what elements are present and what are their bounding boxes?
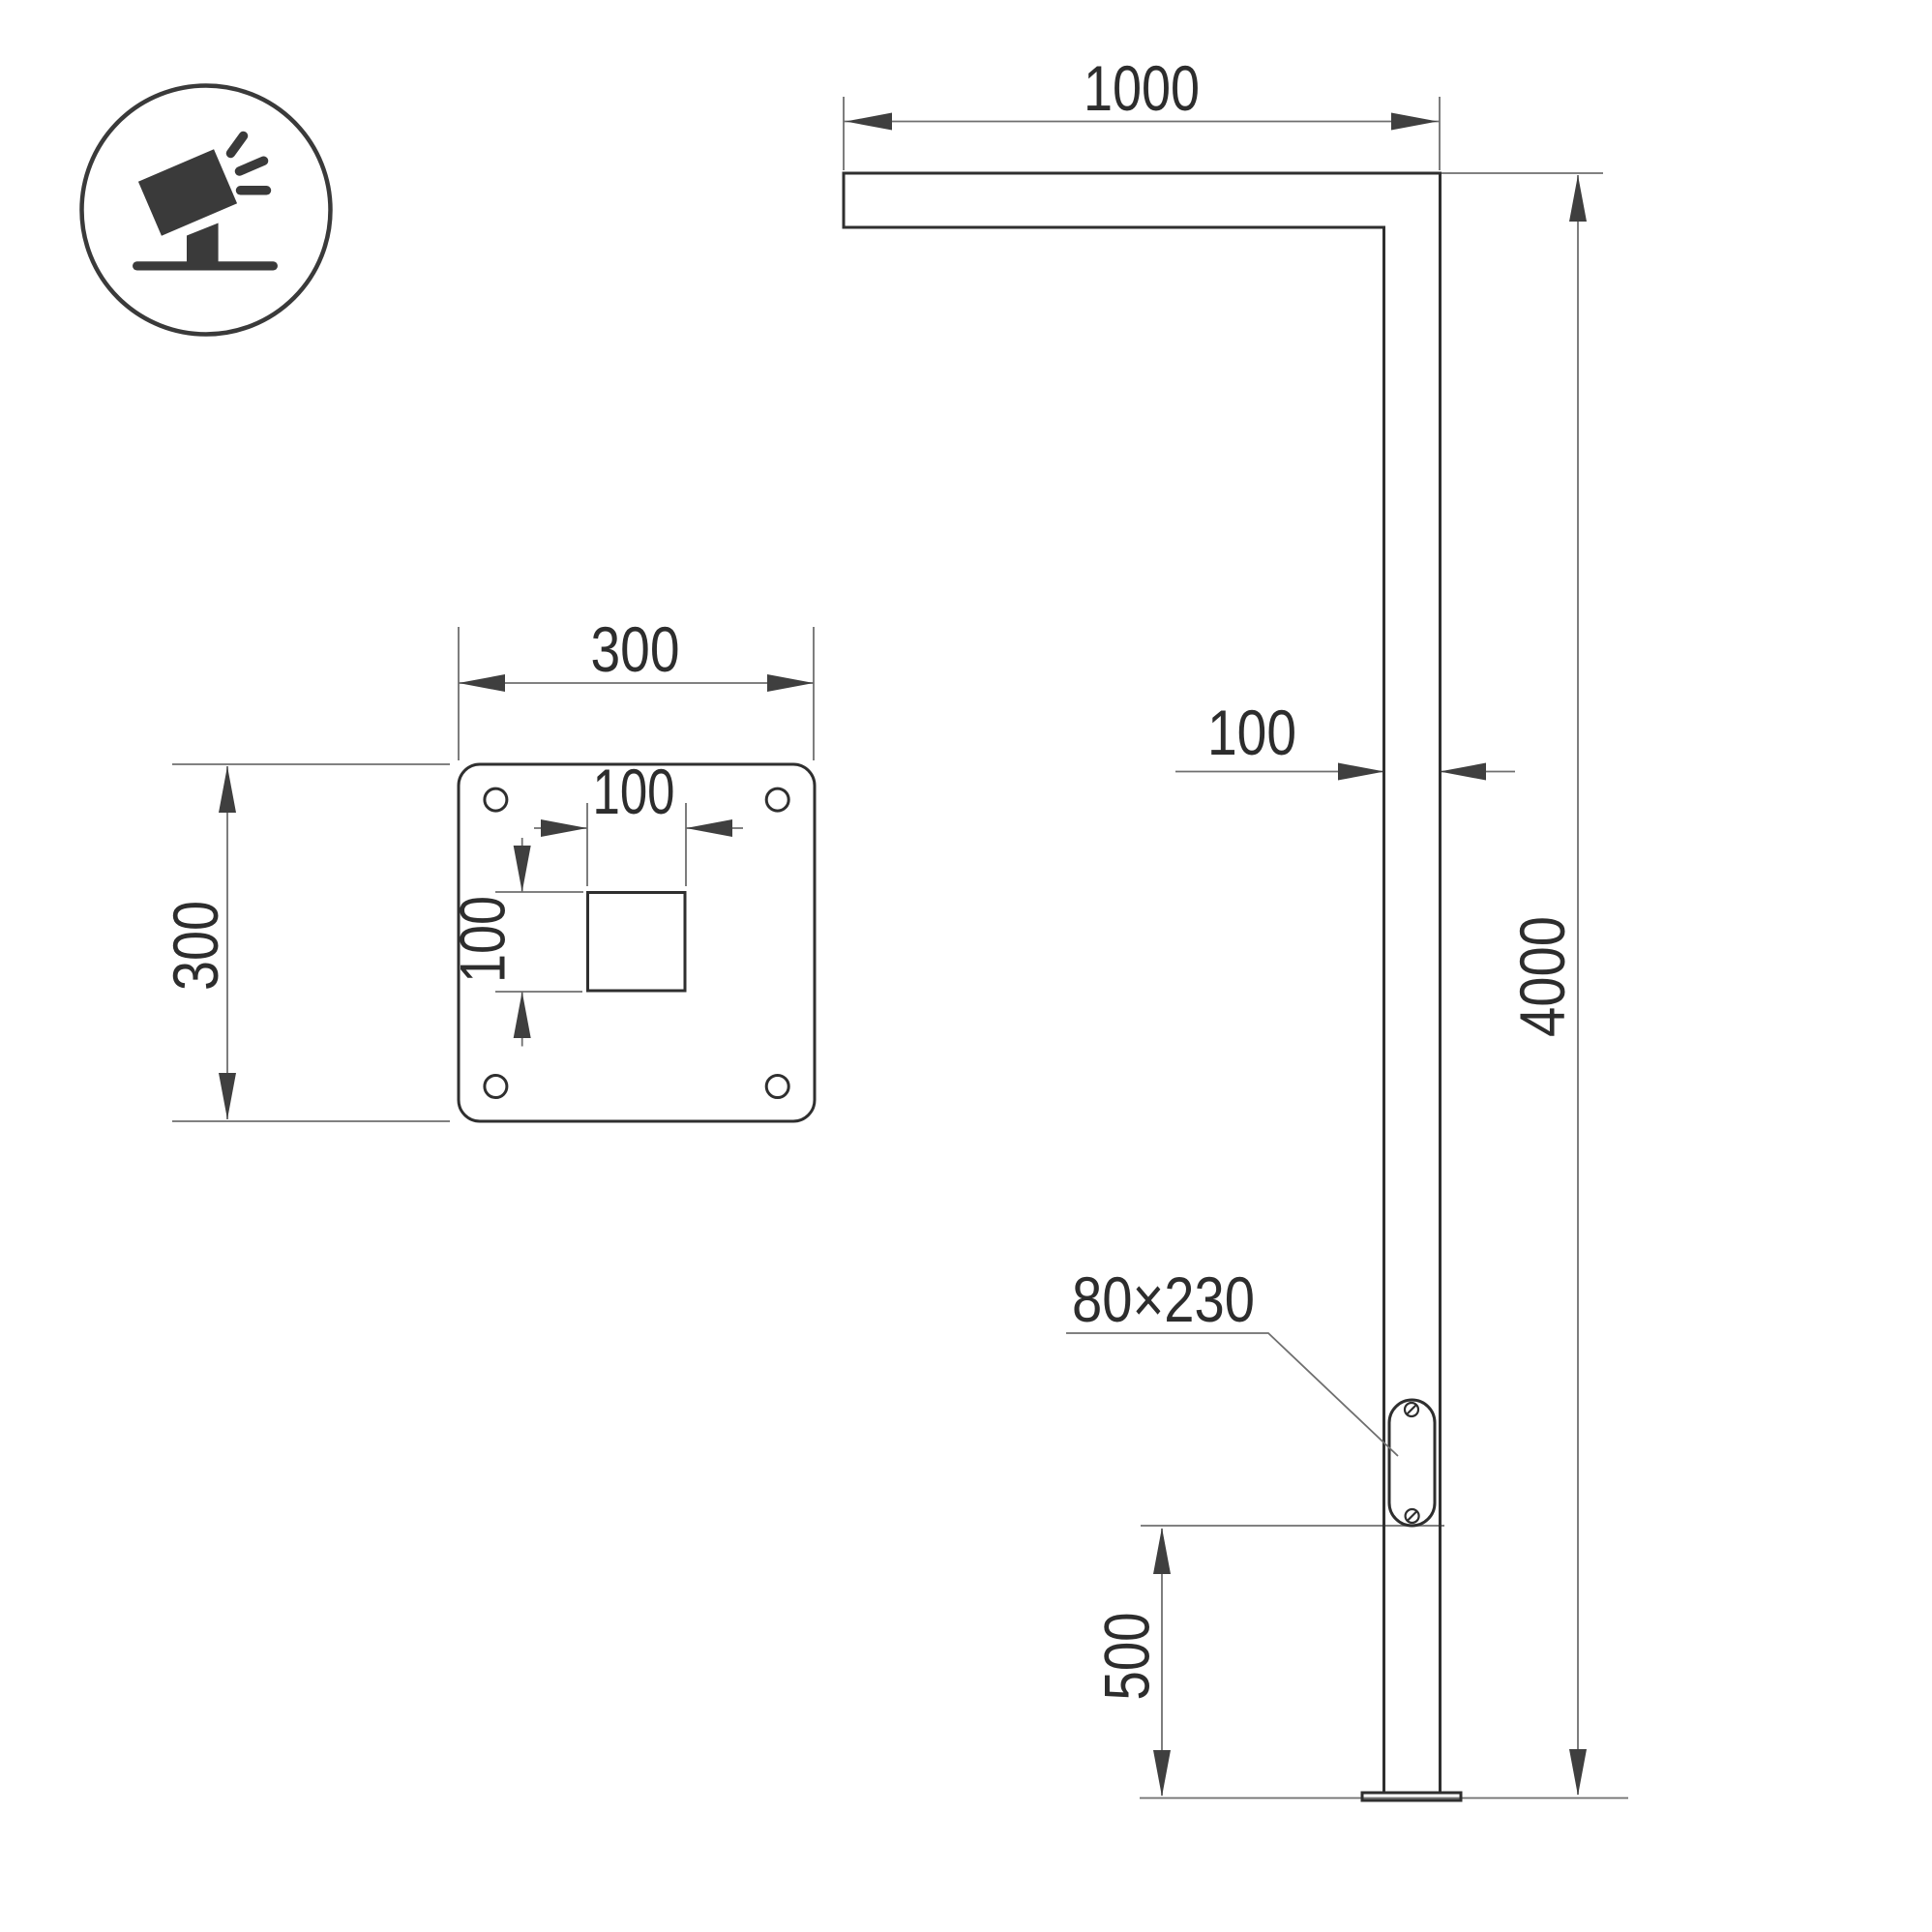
svg-text:80×230: 80×230 [1072,1263,1255,1335]
svg-text:100: 100 [593,756,675,827]
svg-text:100: 100 [447,896,519,983]
svg-text:100: 100 [1207,697,1296,768]
svg-text:500: 500 [1091,1613,1163,1701]
svg-text:300: 300 [591,613,680,685]
svg-text:300: 300 [160,901,231,991]
svg-text:4000: 4000 [1506,916,1578,1037]
svg-text:1000: 1000 [1084,52,1200,124]
